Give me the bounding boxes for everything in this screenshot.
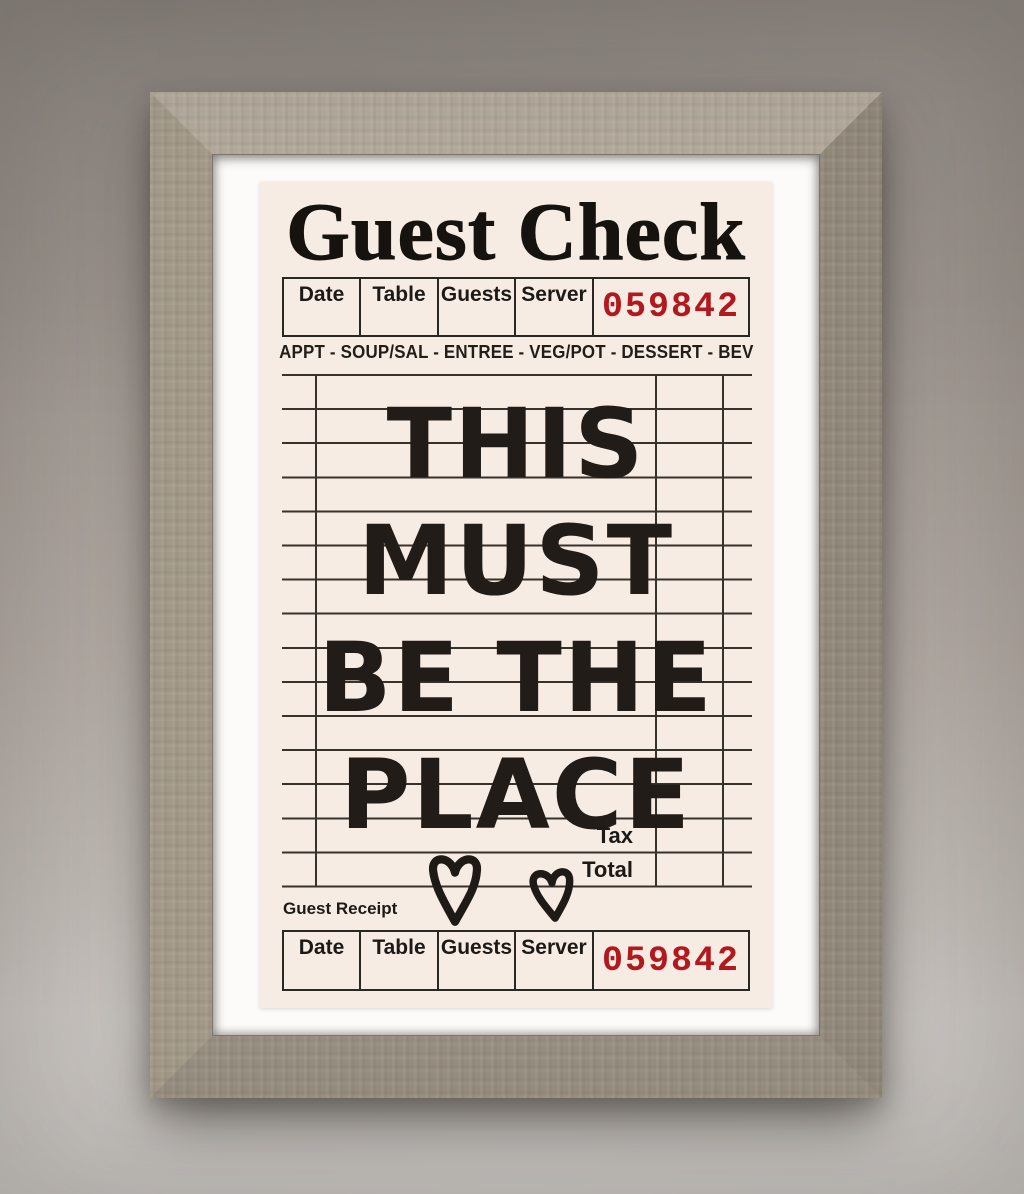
heart-icon [423, 848, 487, 930]
receipt-check-number: 059842 [594, 932, 748, 989]
column-header-guests: Guests [439, 279, 516, 335]
frame-mat: Guest Check Date Table Guests Server 059… [212, 154, 820, 1036]
check-number: 059842 [594, 279, 748, 335]
column-header-date: Date [284, 279, 361, 335]
poster-title: Guest Check [260, 188, 772, 276]
guest-check-poster: Guest Check Date Table Guests Server 059… [260, 182, 772, 1008]
receipt-column-table: Table [361, 932, 439, 989]
guest-receipt-table: Date Table Guests Server 059842 [282, 930, 750, 991]
marker-message: THIS MUST BE THE PLACE [260, 386, 772, 854]
message-line-1: THIS [260, 386, 772, 503]
receipt-column-guests: Guests [439, 932, 516, 989]
check-header-table: Date Table Guests Server 059842 [282, 277, 750, 337]
guest-receipt-label: Guest Receipt [283, 899, 397, 919]
column-header-table: Table [361, 279, 439, 335]
column-header-server: Server [516, 279, 594, 335]
heart-icon [523, 861, 582, 927]
message-line-3: BE THE [260, 620, 772, 737]
receipt-column-server: Server [516, 932, 594, 989]
receipt-column-date: Date [284, 932, 361, 989]
message-line-2: MUST [260, 503, 772, 620]
menu-course-line: APPT - SOUP/SAL - ENTREE - VEG/POT - DES… [260, 342, 772, 363]
wall-background: Guest Check Date Table Guests Server 059… [0, 0, 1024, 1194]
picture-frame: Guest Check Date Table Guests Server 059… [150, 92, 882, 1098]
